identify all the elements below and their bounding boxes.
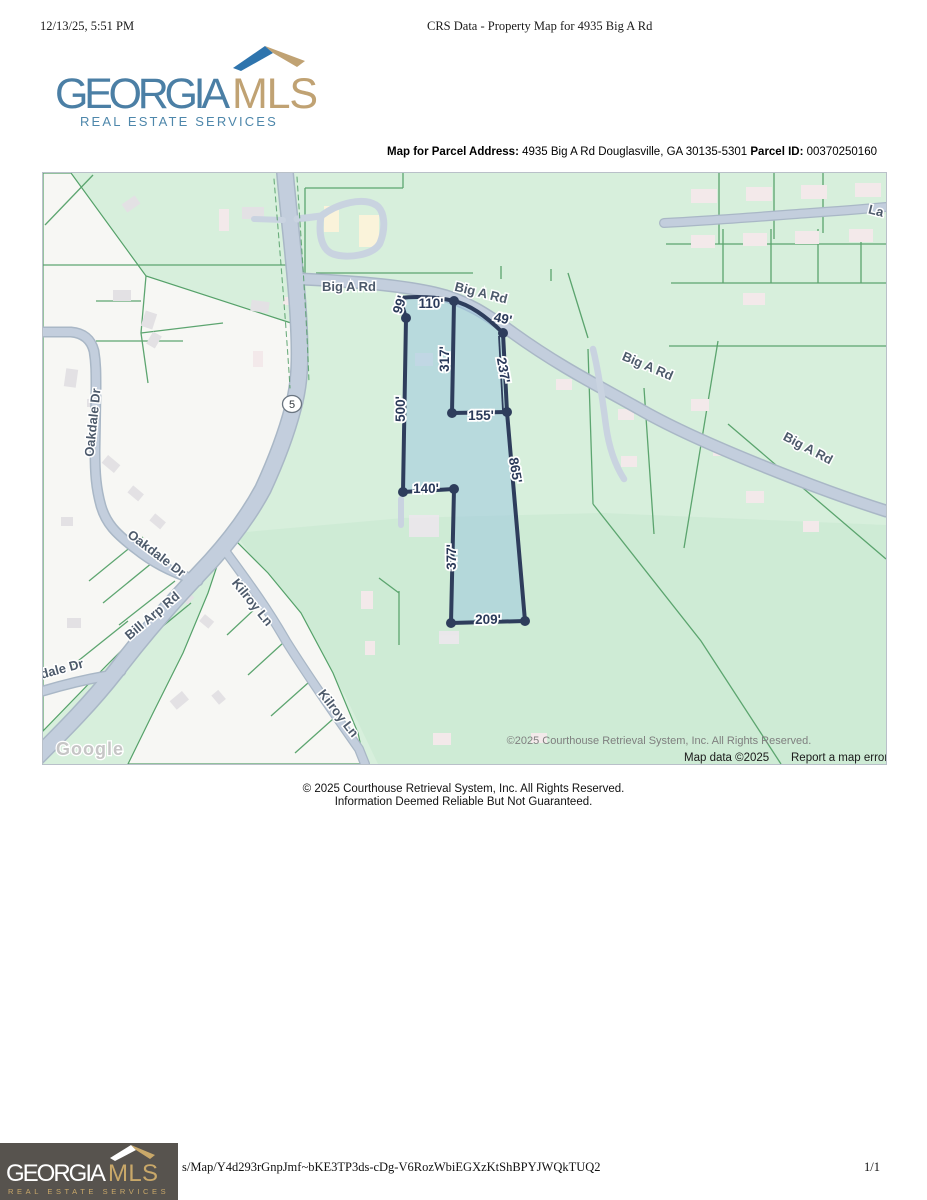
print-datetime: 12/13/25, 5:51 PM [40, 19, 134, 34]
highway-5-number: 5 [289, 399, 295, 411]
road-label-la: La [867, 202, 886, 220]
footer-logo-art: GEORGIA MLS REAL ESTATE SERVICES [0, 1143, 178, 1200]
footer-logo-roof-icon [110, 1145, 136, 1161]
dim-500: 500' [393, 396, 408, 422]
copyright-line: © 2025 Courthouse Retrieval System, Inc.… [0, 783, 927, 796]
georgiamls-logo-art: GEORGIA MLS REAL ESTATE SERVICES [45, 42, 325, 134]
map-data-copyright: Map data ©2025 [684, 752, 769, 764]
parcel-address-label: Map for Parcel Address: [387, 146, 519, 158]
dim-377: 377' [444, 544, 459, 570]
logo-tagline: REAL ESTATE SERVICES [80, 114, 280, 129]
footer-georgiamls-logo: GEORGIA MLS REAL ESTATE SERVICES [0, 1143, 178, 1200]
print-title: CRS Data - Property Map for 4935 Big A R… [427, 19, 652, 34]
georgiamls-logo: GEORGIA MLS REAL ESTATE SERVICES [45, 42, 325, 139]
dim-317: 317' [437, 346, 452, 372]
parcel-address-line: Map for Parcel Address: 4935 Big A Rd Do… [387, 146, 877, 158]
footer-logo-mls: MLS [108, 1160, 158, 1187]
logo-text-mls: MLS [232, 70, 318, 118]
highway-5-shield: 5 [283, 396, 302, 413]
page-number: 1/1 [864, 1160, 880, 1175]
parcel-id-value: 00370250160 [807, 146, 877, 158]
property-map[interactable]: 99' 110' 49' 317' 237' 155' 500' 865' 14… [42, 172, 887, 765]
map-canvas: 99' 110' 49' 317' 237' 155' 500' 865' 14… [43, 173, 886, 764]
printed-page: 12/13/25, 5:51 PM CRS Data - Property Ma… [0, 0, 927, 1200]
dim-110: 110' [419, 296, 444, 311]
dim-209: 209' [475, 612, 501, 627]
map-attribution-overlay: ©2025 Courthouse Retrieval System, Inc. … [507, 735, 812, 747]
footer-logo-tagline: REAL ESTATE SERVICES [8, 1187, 168, 1196]
logo-roof-icon [233, 46, 273, 71]
road-label-bigard-1: Big A Rd [322, 279, 376, 294]
logo-text-georgia: GEORGIA [55, 70, 230, 118]
parcel-address-value: 4935 Big A Rd Douglasville, GA 30135-530… [522, 146, 747, 158]
dim-140: 140' [413, 481, 439, 496]
dim-155: 155' [468, 408, 494, 423]
footer-url: s/Map/Y4d293rGnpJmf~bKE3TP3ds-cDg-V6RozW… [182, 1160, 601, 1175]
road-bigard [301, 279, 886, 511]
report-map-error-link[interactable]: Report a map error [791, 752, 886, 764]
disclaimer-block: © 2025 Courthouse Retrieval System, Inc.… [0, 783, 927, 809]
parcel-id-label: Parcel ID: [750, 146, 803, 158]
google-watermark[interactable]: Google [56, 739, 124, 759]
road-label-bigard-3: Big A Rd [620, 348, 676, 383]
reliability-line: Information Deemed Reliable But Not Guar… [0, 796, 927, 809]
footer-logo-georgia: GEORGIA [6, 1160, 106, 1187]
road-label-bigard-4: Big A Rd [781, 429, 836, 468]
